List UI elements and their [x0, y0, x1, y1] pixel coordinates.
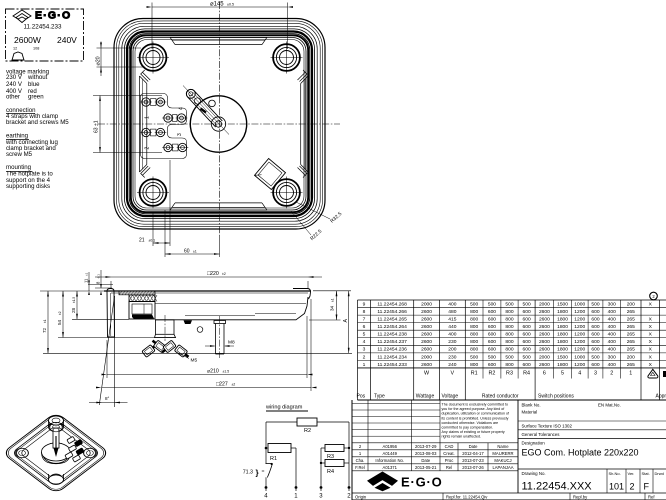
svg-text:2013-07-26: 2013-07-26 [462, 465, 484, 470]
svg-text:Switch positions: Switch positions [538, 394, 574, 400]
svg-text:The document is exclusively co: The document is exclusively committed to [442, 403, 509, 407]
svg-text:EGO Com. Hotplate 220x220: EGO Com. Hotplate 220x220 [522, 448, 639, 458]
svg-text:wiring diagram: wiring diagram [265, 405, 303, 411]
svg-text:200: 200 [448, 347, 456, 353]
svg-text:400: 400 [608, 324, 616, 330]
svg-text:±0.5: ±0.5 [227, 3, 234, 7]
svg-text:800: 800 [470, 324, 478, 330]
svg-text:415: 415 [448, 317, 456, 323]
svg-text:1800: 1800 [557, 332, 568, 338]
svg-text:34: 34 [330, 305, 335, 311]
svg-text:R1: R1 [471, 371, 478, 377]
svg-text:2600: 2600 [539, 362, 550, 368]
svg-text:600: 600 [488, 309, 496, 315]
svg-text:230 V: 230 V [6, 74, 23, 81]
svg-text:committed to pay compensation.: committed to pay compensation. [442, 426, 494, 430]
svg-text:2000: 2000 [421, 301, 432, 307]
svg-text:28: 28 [71, 307, 76, 313]
svg-text:EN Mat.No.: EN Mat.No. [598, 403, 621, 408]
svg-text:⌀20: ⌀20 [96, 56, 102, 65]
svg-text:F: F [644, 482, 650, 492]
svg-text:800: 800 [505, 332, 513, 338]
svg-text:11.22454.238: 11.22454.238 [377, 332, 407, 338]
svg-text:800: 800 [505, 317, 513, 323]
svg-text:12: 12 [13, 47, 17, 51]
svg-text:265: 265 [627, 362, 635, 368]
svg-text:M5: M5 [191, 358, 198, 364]
svg-text:400: 400 [608, 339, 616, 345]
svg-text:600: 600 [591, 324, 599, 330]
svg-text:11: 11 [84, 278, 89, 283]
svg-text:Origin: Origin [355, 494, 367, 499]
svg-text:CAD: CAD [445, 444, 454, 449]
svg-text:its content is prohibited. Unl: its content is prohibited. Unless previo… [442, 416, 509, 420]
svg-text:600: 600 [488, 324, 496, 330]
svg-text:A: A [343, 319, 349, 323]
svg-text:600: 600 [523, 339, 531, 345]
svg-text:600: 600 [523, 324, 531, 330]
svg-text:63 ±1: 63 ±1 [94, 120, 100, 133]
svg-text:±2: ±2 [222, 272, 226, 276]
svg-text:Rel: Rel [446, 465, 452, 470]
svg-text:400: 400 [448, 301, 456, 307]
svg-text:rights remain unaffected.: rights remain unaffected. [442, 435, 482, 439]
svg-text:Cha.: Cha. [356, 458, 365, 463]
svg-text:bracket and screws M5: bracket and screws M5 [6, 119, 69, 126]
svg-text:1: 1 [145, 116, 151, 119]
svg-text:Ver.: Ver. [628, 471, 635, 476]
svg-text:240: 240 [448, 362, 456, 368]
svg-text:265: 265 [627, 332, 635, 338]
svg-text:Creat.: Creat. [443, 451, 454, 456]
svg-text:Ref: Ref [648, 494, 655, 499]
svg-text:R4: R4 [523, 371, 530, 377]
svg-text:3: 3 [177, 133, 183, 136]
svg-text:Date: Date [421, 458, 431, 463]
svg-text:6: 6 [363, 324, 366, 330]
svg-text:Wattage: Wattage [416, 394, 435, 400]
svg-text:400: 400 [448, 332, 456, 338]
svg-text:500: 500 [470, 354, 478, 360]
svg-text:2600: 2600 [421, 309, 432, 315]
svg-text:2600: 2600 [421, 332, 432, 338]
svg-text:200: 200 [627, 301, 635, 307]
svg-text:4: 4 [179, 107, 185, 110]
svg-text:2600: 2600 [421, 324, 432, 330]
svg-text:1200: 1200 [574, 324, 585, 330]
svg-text:Stat.: Stat. [642, 471, 650, 476]
svg-text:600: 600 [591, 317, 599, 323]
svg-text:500: 500 [488, 354, 496, 360]
svg-text:400: 400 [608, 347, 616, 353]
svg-text:7: 7 [363, 317, 366, 323]
svg-text:}: } [256, 469, 259, 478]
svg-text:9: 9 [363, 301, 366, 307]
svg-text:2600W: 2600W [14, 35, 41, 45]
svg-text:11.22454.264: 11.22454.264 [377, 324, 407, 330]
svg-text:800: 800 [470, 332, 478, 338]
svg-text:600: 600 [591, 347, 599, 353]
svg-text:A01449: A01449 [383, 451, 398, 456]
svg-text:±1: ±1 [43, 319, 47, 323]
svg-text:800: 800 [505, 339, 513, 345]
svg-text:800: 800 [470, 309, 478, 315]
svg-text:⌀210: ⌀210 [207, 369, 219, 375]
svg-text:500: 500 [591, 301, 599, 307]
svg-text:600: 600 [523, 347, 531, 353]
svg-text:800: 800 [470, 317, 478, 323]
svg-text:2600: 2600 [421, 339, 432, 345]
svg-text:11.22454.234: 11.22454.234 [377, 354, 407, 360]
svg-text:200: 200 [627, 354, 635, 360]
svg-text:2600: 2600 [539, 332, 550, 338]
svg-text:230: 230 [448, 354, 456, 360]
svg-text:2: 2 [363, 354, 366, 360]
svg-text:600: 600 [523, 317, 531, 323]
svg-text:11.22454.233: 11.22454.233 [24, 24, 63, 31]
svg-text:2600: 2600 [421, 347, 432, 353]
svg-text:800: 800 [470, 339, 478, 345]
svg-text:Rated conductor: Rated conductor [482, 394, 519, 400]
svg-text:Designation: Designation [522, 441, 546, 446]
svg-text:Voltage: Voltage [442, 394, 459, 400]
svg-text:54: 54 [57, 319, 62, 325]
svg-text:Proc: Proc [445, 458, 454, 463]
svg-text:800: 800 [505, 324, 513, 330]
svg-text:60: 60 [184, 248, 190, 254]
svg-text:11.22454.268: 11.22454.268 [377, 301, 407, 307]
svg-text:800: 800 [505, 362, 513, 368]
svg-text:1800: 1800 [557, 324, 568, 330]
svg-text:240V: 240V [57, 35, 77, 45]
svg-text:2600: 2600 [421, 317, 432, 323]
svg-text:500: 500 [523, 354, 531, 360]
svg-text:4: 4 [363, 339, 366, 345]
svg-text:600: 600 [488, 317, 496, 323]
svg-text:±1: ±1 [193, 249, 197, 253]
svg-text:265: 265 [627, 347, 635, 353]
svg-text:1200: 1200 [574, 347, 585, 353]
svg-text:1800: 1800 [557, 317, 568, 323]
svg-text:2013-07-23: 2013-07-23 [462, 458, 484, 463]
svg-text:2000: 2000 [539, 354, 550, 360]
svg-text:300: 300 [608, 301, 616, 307]
svg-text:□220: □220 [207, 271, 219, 277]
svg-text:1: 1 [629, 371, 632, 377]
svg-text:R2: R2 [488, 371, 495, 377]
svg-text:MAURERR: MAURERR [492, 451, 513, 456]
svg-text:1200: 1200 [574, 339, 585, 345]
svg-text:11.22454.265: 11.22454.265 [377, 317, 407, 323]
svg-text:other: other [6, 94, 20, 101]
svg-text:5: 5 [561, 371, 564, 377]
svg-text:Surface Texture ISO 1302: Surface Texture ISO 1302 [522, 423, 573, 428]
svg-text:2600: 2600 [539, 347, 550, 353]
svg-text:1200: 1200 [574, 362, 585, 368]
svg-text:4: 4 [578, 371, 581, 377]
svg-text:V: V [451, 371, 455, 377]
svg-text:1200: 1200 [574, 317, 585, 323]
svg-text:conducted otherwise. Violation: conducted otherwise. Violations are [442, 421, 499, 425]
svg-text:MAKUCJ: MAKUCJ [494, 458, 511, 463]
svg-text:M8: M8 [228, 340, 235, 346]
svg-text:A01956: A01956 [383, 444, 398, 449]
svg-text:5: 5 [363, 332, 366, 338]
svg-text:71.3: 71.3 [243, 470, 253, 476]
svg-text:2600: 2600 [421, 362, 432, 368]
svg-text:R1: R1 [270, 456, 277, 462]
svg-text:without: without [27, 74, 48, 81]
svg-text:W: W [424, 371, 430, 377]
svg-text:265: 265 [627, 339, 635, 345]
svg-text:Type: Type [374, 394, 385, 400]
svg-text:3: 3 [363, 347, 366, 353]
svg-text:Sh.No.: Sh.No. [609, 471, 621, 476]
svg-text:±1: ±1 [331, 298, 335, 302]
svg-text:±2: ±2 [232, 383, 236, 387]
svg-text:11.22454.236: 11.22454.236 [377, 347, 407, 353]
svg-text:screw M5: screw M5 [6, 151, 33, 158]
svg-text:440: 440 [448, 324, 456, 330]
svg-text:11.22454.237: 11.22454.237 [377, 339, 407, 345]
svg-text:supporting disks: supporting disks [6, 183, 50, 190]
svg-text:600: 600 [523, 332, 531, 338]
svg-text:400: 400 [608, 309, 616, 315]
svg-text:600: 600 [591, 309, 599, 315]
svg-text:Appr: Appr [656, 394, 666, 400]
svg-text:duplication, utilization or co: duplication, utilization or communicatio… [442, 412, 510, 416]
svg-text:□227: □227 [216, 382, 228, 388]
svg-text:LAPANJAA: LAPANJAA [492, 465, 513, 470]
svg-text:Date: Date [469, 444, 479, 449]
svg-text:300: 300 [608, 354, 616, 360]
svg-text:600: 600 [488, 362, 496, 368]
svg-text:800: 800 [505, 309, 513, 315]
svg-text:11.22454.266: 11.22454.266 [377, 309, 407, 315]
svg-text:2600: 2600 [539, 339, 550, 345]
svg-text:400: 400 [608, 317, 616, 323]
svg-text:500: 500 [591, 354, 599, 360]
svg-text:600: 600 [523, 362, 531, 368]
svg-text:Information No.: Information No. [375, 458, 404, 463]
svg-text:500: 500 [505, 354, 513, 360]
svg-text:800: 800 [470, 362, 478, 368]
svg-text:265: 265 [627, 324, 635, 330]
svg-text:400: 400 [608, 332, 616, 338]
svg-text:600: 600 [591, 332, 599, 338]
svg-text:R2: R2 [304, 428, 311, 434]
svg-text:230: 230 [448, 339, 456, 345]
svg-text:11.22454.233: 11.22454.233 [377, 362, 407, 368]
svg-text:265: 265 [627, 309, 635, 315]
svg-text:2013-08-03: 2013-08-03 [415, 451, 437, 456]
svg-text:101: 101 [609, 482, 624, 492]
svg-text:1500: 1500 [557, 354, 568, 360]
svg-text:500: 500 [523, 301, 531, 307]
svg-text:2012-04-17: 2012-04-17 [462, 451, 484, 456]
svg-text:F.Rel: F.Rel [355, 465, 365, 470]
svg-text:600: 600 [488, 339, 496, 345]
svg-text:E·G·O: E·G·O [35, 10, 71, 22]
svg-text:R4: R4 [327, 469, 334, 475]
svg-text:72: 72 [42, 327, 47, 333]
svg-text:2600: 2600 [539, 309, 550, 315]
svg-text:1800: 1800 [557, 339, 568, 345]
svg-text:500: 500 [488, 301, 496, 307]
svg-text:8°: 8° [105, 396, 110, 401]
svg-text:265: 265 [627, 317, 635, 323]
svg-text:240 V: 240 V [6, 81, 23, 88]
svg-text:108: 108 [33, 47, 39, 51]
svg-text:11.22454.XXX: 11.22454.XXX [522, 481, 593, 493]
svg-text:Any claims of existing or futu: Any claims of existing or future propert… [442, 430, 505, 434]
svg-text:21: 21 [139, 238, 145, 244]
svg-text:blue: blue [28, 81, 40, 88]
svg-text:±1: ±1 [85, 272, 89, 276]
svg-text:General Tolerances: General Tolerances [522, 432, 561, 437]
svg-text:480: 480 [448, 309, 456, 315]
svg-text:2000: 2000 [539, 301, 550, 307]
svg-text:1800: 1800 [557, 347, 568, 353]
svg-text:±1.5: ±1.5 [223, 370, 230, 374]
svg-text:Name: Name [497, 444, 509, 449]
svg-text:600: 600 [488, 347, 496, 353]
svg-text:1500: 1500 [557, 301, 568, 307]
svg-text:600: 600 [523, 309, 531, 315]
svg-text:Repl.for. 11.22454.Qiv: Repl.for. 11.22454.Qiv [446, 494, 488, 499]
svg-text:⌀145: ⌀145 [210, 2, 224, 8]
svg-text:500: 500 [470, 301, 478, 307]
svg-text:±2: ±2 [58, 311, 62, 315]
svg-text:2000: 2000 [421, 354, 432, 360]
svg-text:you for the agreed purpose. An: you for the agreed purpose. Any kind of [442, 407, 505, 411]
svg-text:-0.1: -0.1 [97, 274, 101, 279]
svg-text:3: 3 [594, 371, 597, 377]
svg-text:600: 600 [488, 332, 496, 338]
svg-text:2: 2 [630, 482, 635, 492]
svg-text:1000: 1000 [574, 354, 585, 360]
svg-text:Drwd: Drwd [655, 471, 664, 476]
svg-text:2: 2 [610, 371, 613, 377]
svg-text:800: 800 [470, 347, 478, 353]
svg-text:2600: 2600 [539, 317, 550, 323]
svg-text:600: 600 [591, 339, 599, 345]
svg-text:1800: 1800 [557, 362, 568, 368]
svg-text:1000: 1000 [574, 301, 585, 307]
svg-text:400: 400 [608, 362, 616, 368]
svg-text:6: 6 [543, 371, 546, 377]
svg-text:Repl.by: Repl.by [573, 494, 588, 499]
svg-text:1800: 1800 [557, 309, 568, 315]
svg-text:800: 800 [505, 347, 513, 353]
svg-text:2: 2 [145, 147, 151, 150]
svg-text:8: 8 [363, 309, 366, 315]
svg-text:500: 500 [505, 301, 513, 307]
svg-text:2600: 2600 [539, 324, 550, 330]
svg-text:Material: Material [522, 410, 538, 415]
svg-text:Drawing No.: Drawing No. [522, 471, 546, 476]
svg-text:R3: R3 [506, 371, 513, 377]
svg-text:±0.1: ±0.1 [149, 239, 156, 243]
svg-text:green: green [28, 94, 44, 101]
svg-text:A01371: A01371 [383, 465, 398, 470]
svg-text:1: 1 [363, 362, 366, 368]
svg-text:600: 600 [591, 362, 599, 368]
svg-text:2013-07-29: 2013-07-29 [415, 444, 437, 449]
svg-text:1200: 1200 [574, 332, 585, 338]
svg-text:2013-05-21: 2013-05-21 [415, 465, 437, 470]
svg-text:1200: 1200 [574, 309, 585, 315]
svg-text:Pos: Pos [357, 394, 366, 400]
svg-text:Blank No.: Blank No. [522, 403, 541, 408]
svg-text:±1.5: ±1.5 [72, 297, 76, 303]
svg-text:E·G·O: E·G·O [401, 475, 443, 490]
